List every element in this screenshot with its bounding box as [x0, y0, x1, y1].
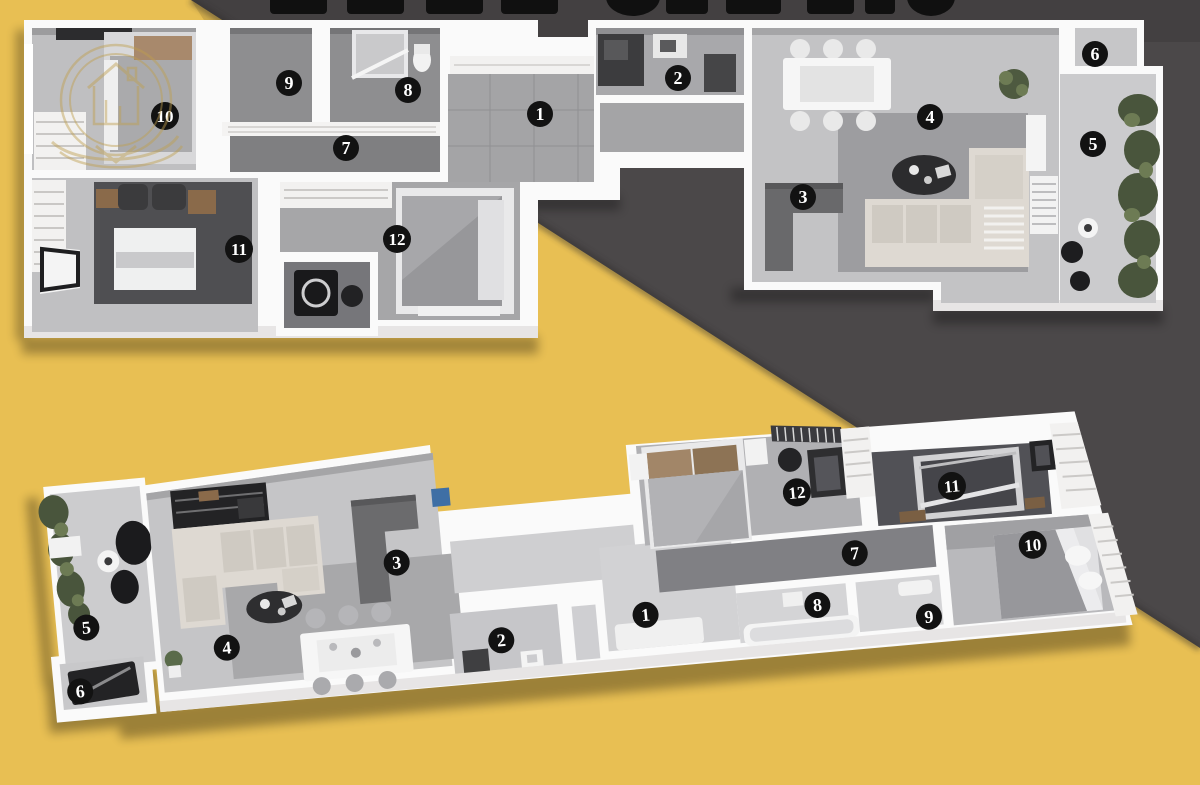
svg-text:3: 3	[799, 187, 808, 207]
svg-text:1: 1	[536, 104, 545, 124]
svg-text:2: 2	[496, 630, 507, 651]
svg-text:5: 5	[1089, 134, 1098, 154]
svg-text:7: 7	[849, 543, 860, 564]
svg-text:4: 4	[926, 107, 935, 127]
svg-text:8: 8	[812, 595, 823, 616]
svg-text:3: 3	[391, 552, 402, 573]
svg-text:2: 2	[674, 68, 683, 88]
svg-text:12: 12	[788, 483, 807, 503]
svg-text:9: 9	[285, 73, 294, 93]
svg-text:9: 9	[924, 606, 935, 627]
svg-text:7: 7	[342, 138, 351, 158]
svg-text:11: 11	[943, 476, 961, 496]
svg-text:1: 1	[640, 604, 651, 625]
svg-text:4: 4	[221, 637, 232, 658]
svg-text:10: 10	[1023, 535, 1042, 555]
svg-text:11: 11	[231, 240, 247, 259]
svg-text:8: 8	[404, 80, 413, 100]
svg-text:5: 5	[81, 617, 92, 638]
svg-text:6: 6	[75, 681, 86, 702]
svg-text:12: 12	[389, 230, 406, 249]
svg-text:6: 6	[1091, 44, 1100, 64]
